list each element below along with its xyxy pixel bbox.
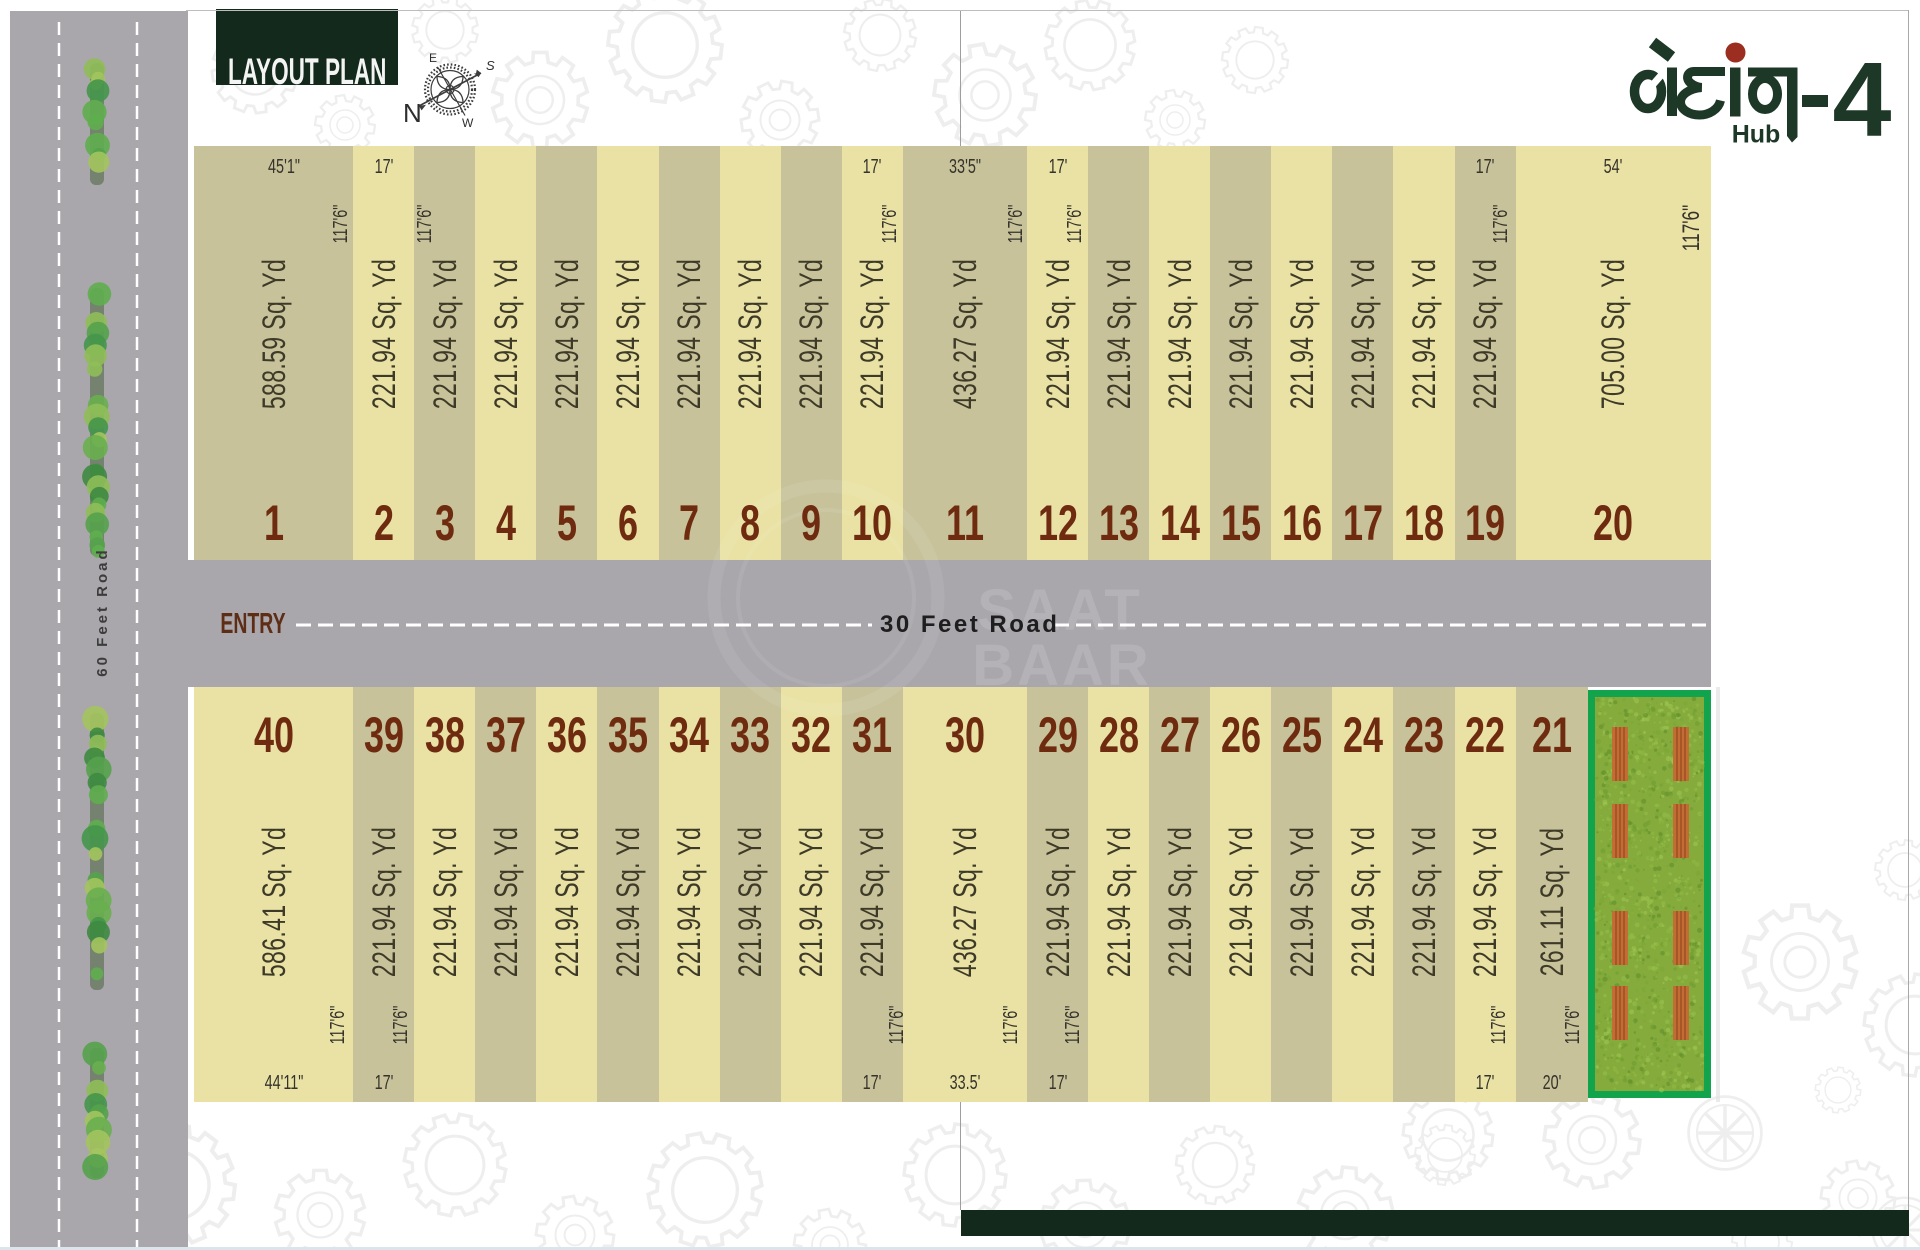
svg-text:N: N [403, 98, 422, 128]
svg-text:S: S [486, 58, 495, 73]
svg-text:BAAR: BAAR [972, 633, 1152, 698]
svg-text:Hub: Hub [1732, 121, 1781, 149]
svg-text:4: 4 [1833, 41, 1892, 159]
svg-text:W: W [462, 116, 474, 130]
svg-text:E: E [429, 51, 437, 65]
